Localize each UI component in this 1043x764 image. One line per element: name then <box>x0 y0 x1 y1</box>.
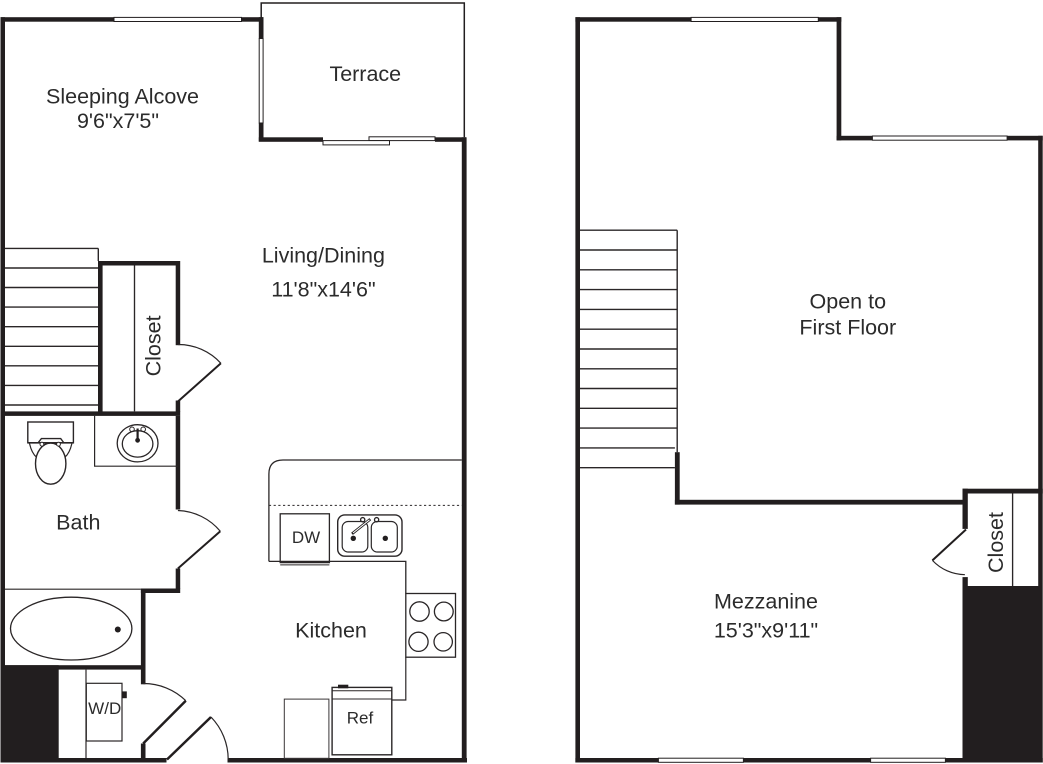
svg-text:15'3"x9'11": 15'3"x9'11" <box>714 619 818 643</box>
svg-text:9'6"x7'5": 9'6"x7'5" <box>77 109 159 133</box>
svg-text:First Floor: First Floor <box>799 316 896 340</box>
svg-text:DW: DW <box>292 528 320 547</box>
svg-text:Closet: Closet <box>141 315 165 376</box>
svg-text:Closet: Closet <box>984 512 1008 573</box>
svg-text:11'8"x14'6": 11'8"x14'6" <box>271 278 375 302</box>
svg-text:Bath: Bath <box>56 511 100 535</box>
svg-text:Kitchen: Kitchen <box>295 619 367 643</box>
svg-text:Terrace: Terrace <box>329 62 401 86</box>
svg-text:Open to: Open to <box>810 290 887 314</box>
svg-text:Sleeping Alcove: Sleeping Alcove <box>46 85 199 109</box>
svg-text:Mezzanine: Mezzanine <box>714 590 818 614</box>
svg-text:Living/Dining: Living/Dining <box>262 244 385 268</box>
svg-text:W/D: W/D <box>88 699 121 718</box>
svg-text:Ref: Ref <box>347 708 374 727</box>
